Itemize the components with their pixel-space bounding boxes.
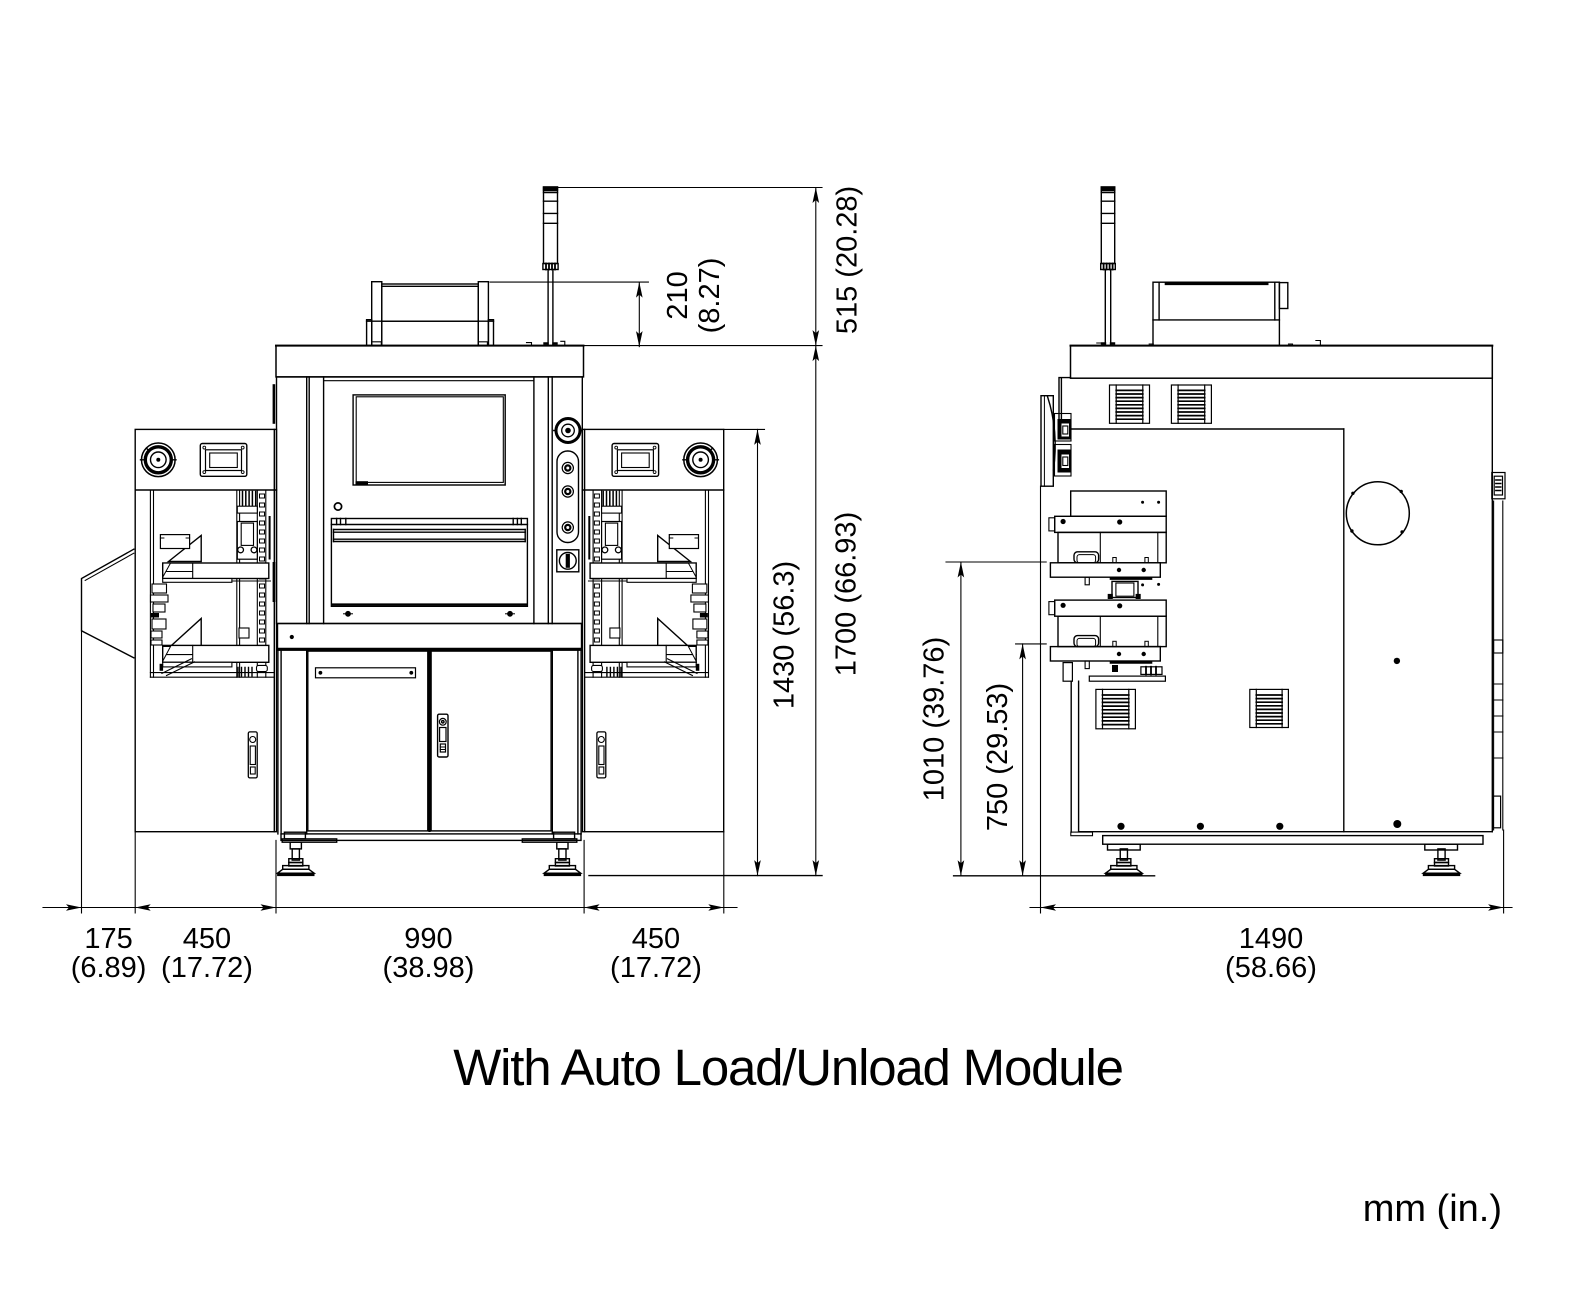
svg-text:(17.72): (17.72) [610, 952, 702, 984]
svg-text:(38.98): (38.98) [383, 952, 475, 984]
svg-text:(17.72): (17.72) [161, 952, 253, 984]
svg-text:450: 450 [632, 923, 680, 955]
svg-text:mm (in.): mm (in.) [1363, 1188, 1502, 1230]
svg-text:750 (29.53): 750 (29.53) [982, 683, 1014, 831]
svg-text:1010 (39.76): 1010 (39.76) [919, 637, 951, 801]
svg-text:990: 990 [404, 923, 452, 955]
svg-text:175: 175 [84, 923, 132, 955]
svg-text:515 (20.28): 515 (20.28) [832, 186, 864, 334]
svg-text:1700 (66.93): 1700 (66.93) [831, 512, 863, 676]
svg-text:1490: 1490 [1239, 923, 1304, 955]
svg-text:(8.27): (8.27) [694, 258, 726, 334]
svg-text:With Auto Load/Unload Module: With Auto Load/Unload Module [453, 1039, 1123, 1096]
svg-text:1430 (56.3): 1430 (56.3) [769, 561, 801, 709]
svg-text:450: 450 [183, 923, 231, 955]
svg-text:210: 210 [662, 271, 694, 319]
svg-text:(6.89): (6.89) [71, 952, 147, 984]
svg-text:(58.66): (58.66) [1225, 952, 1317, 984]
